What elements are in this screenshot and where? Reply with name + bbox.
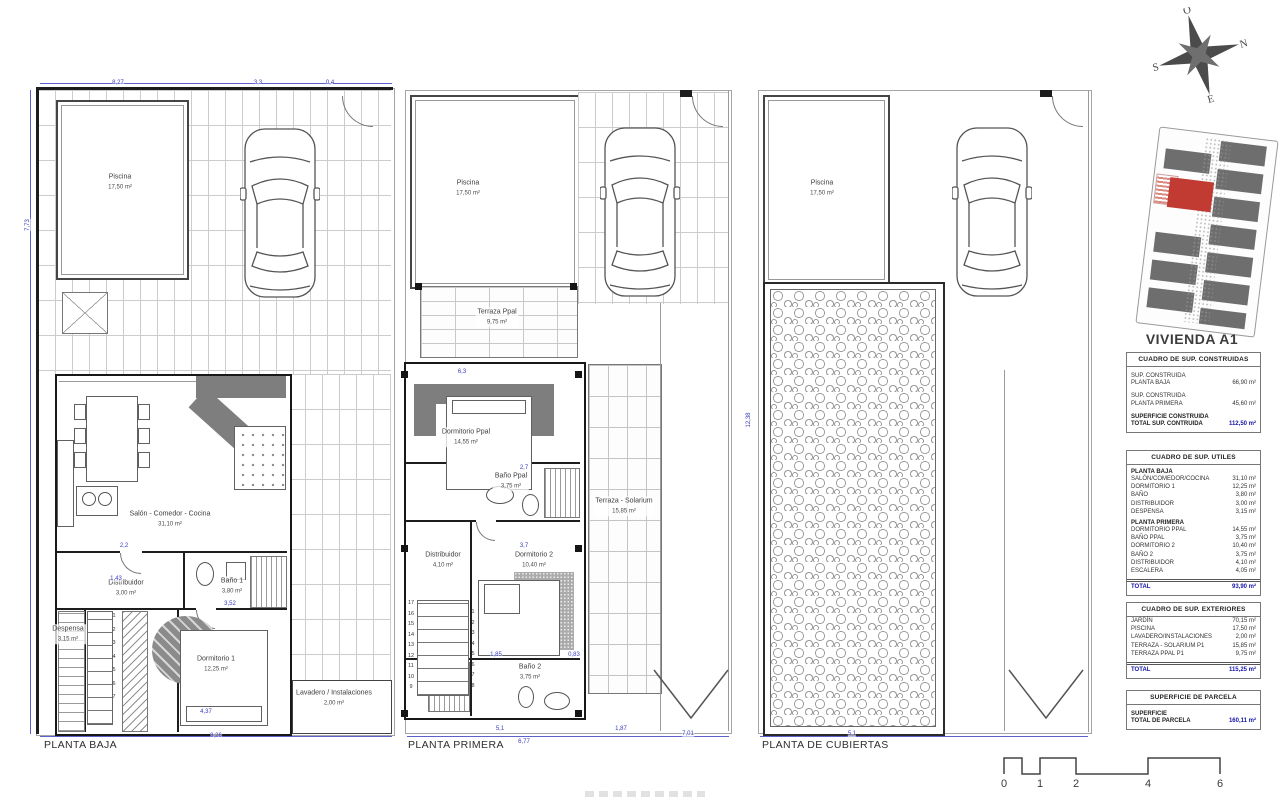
- sink: [544, 692, 570, 710]
- stair-number: 6: [112, 681, 115, 687]
- table-body: SUPERFICIETOTAL DE PARCELA160,11 m²: [1127, 710, 1260, 725]
- room-label: Piscina17,50 m²: [106, 172, 134, 192]
- stair-number: 2: [471, 620, 474, 626]
- span-decor: 17,50 m²: [810, 189, 834, 198]
- stair-number: 1: [471, 609, 474, 615]
- compass-south: S: [1151, 61, 1160, 74]
- chair: [74, 404, 86, 420]
- dim-line: [760, 736, 1088, 737]
- dimension-label: 3,3: [254, 80, 262, 86]
- table-row-label: DORMITORIO 1: [1131, 484, 1175, 491]
- pillar: [401, 545, 408, 552]
- table-row-label: SUPERFICIETOTAL DE PARCELA: [1131, 711, 1191, 725]
- table-row-label: BAÑO 2: [1131, 552, 1153, 559]
- div-decor: TOTAL DE PARCELA: [1131, 718, 1191, 725]
- dimension-label: 5,1: [848, 731, 856, 737]
- table-header: CUADRO DE SUP. UTILES: [1127, 451, 1260, 465]
- table-row: DESPENSA3,15 m²: [1127, 508, 1260, 516]
- headboard-wall: [414, 384, 436, 436]
- table-row-label: BAÑO PPAL: [1131, 535, 1165, 542]
- table-row: ESCALERA4,05 m²: [1127, 567, 1260, 575]
- table-row-value: 93,90 m²: [1229, 584, 1256, 591]
- span-decor: 3,75 m²: [495, 482, 527, 491]
- scale-number: 1: [1037, 778, 1043, 790]
- dim-line: [30, 90, 31, 734]
- table-row: SALÓN/COMEDOR/COCINA31,10 m²: [1127, 475, 1260, 483]
- table-row-label: DISTRIBUIDOR: [1131, 560, 1174, 567]
- table-row: DORMITORIO 112,25 m²: [1127, 483, 1260, 491]
- wall-segment: [36, 87, 393, 90]
- dimension-label: 1,43: [110, 576, 122, 582]
- wall-segment: [57, 608, 179, 610]
- drawing-canvas: PLANTA BAJA PLANTA PRIMERA PLANTA DE CUB…: [0, 0, 1280, 800]
- chair: [138, 452, 150, 468]
- div-decor: SUP. CONSTRUIDA: [1131, 393, 1186, 400]
- dimension-label: 0,83: [568, 652, 580, 658]
- span-decor: Distribuidor: [425, 551, 460, 558]
- span-decor: Dormitorio Ppal: [442, 428, 490, 435]
- span-decor: 15,85 m²: [595, 507, 652, 516]
- sofa: [234, 426, 286, 490]
- table-row-value: 15,85 m²: [1229, 643, 1256, 650]
- div-decor: ESCALERA: [1131, 568, 1163, 575]
- span-decor: Baño 2: [519, 663, 541, 670]
- table-parcela: SUPERFICIE DE PARCELA SUPERFICIETOTAL DE…: [1126, 690, 1261, 730]
- table-row: DISTRIBUIDOR3,00 m²: [1127, 500, 1260, 508]
- table-row: SUPERFICIE CONSTRUIDATOTAL SUP. CONTRUID…: [1127, 413, 1260, 428]
- pillar: [575, 545, 582, 552]
- dimension-label: 0,4: [326, 80, 334, 86]
- dimension-label: 2,7: [520, 465, 528, 471]
- table-row-value: 66,90 m²: [1229, 380, 1256, 387]
- table-row-label: DESPENSA: [1131, 509, 1164, 516]
- div-decor: TERRAZA PPAL P1: [1131, 651, 1184, 658]
- span-decor: Piscina: [457, 179, 480, 186]
- solarium-paving: [588, 364, 662, 694]
- dimension-label: 3,7: [520, 543, 528, 549]
- dimension-label: 3,52: [224, 601, 236, 607]
- room-label: Dormitorio Ppal14,55 m²: [440, 427, 492, 447]
- stair-number: 3: [112, 640, 115, 646]
- span-decor: 3,75 m²: [519, 673, 541, 682]
- div-decor: DORMITORIO 1: [1131, 484, 1175, 491]
- div-decor: DISTRIBUIDOR: [1131, 501, 1174, 508]
- table-row: SUP. CONSTRUIDAPLANTA BAJA66,90 m²: [1127, 372, 1260, 387]
- table-sup-construidas: CUADRO DE SUP. CONSTRUIDAS SUP. CONSTRUI…: [1126, 352, 1261, 433]
- table-row-label: DORMITORIO PPAL: [1131, 527, 1186, 534]
- dimension-label: 1,85: [490, 652, 502, 658]
- span-decor: 9,75 m²: [477, 318, 516, 327]
- span-decor: Despensa: [52, 625, 84, 632]
- stair-number: 12: [408, 653, 414, 659]
- table-sup-utiles: CUADRO DE SUP. UTILES PLANTA BAJASALÓN/C…: [1126, 450, 1261, 596]
- table-row-value: 45,60 m²: [1229, 401, 1256, 408]
- div-decor: TOTAL SUP. CONTRUIDA: [1131, 421, 1209, 428]
- chair: [74, 428, 86, 444]
- table-row: TOTAL93,90 m²: [1127, 579, 1260, 591]
- span-decor: Terraza - Solarium: [595, 497, 652, 504]
- truncated-caption: [585, 791, 705, 797]
- table-row: TERRAZA - SOLARIUM P115,85 m²: [1127, 642, 1260, 650]
- table-row-value: 3,80 m²: [1233, 492, 1256, 499]
- span-decor: 12,25 m²: [197, 665, 235, 674]
- div-decor: DISTRIBUIDOR: [1131, 560, 1174, 567]
- table-row-label: TERRAZA - SOLARIUM P1: [1131, 643, 1204, 650]
- table-row: JARDÍN70,15 m²: [1127, 617, 1260, 625]
- table-row-label: SALÓN/COMEDOR/COCINA: [1131, 476, 1209, 483]
- boundary-line: [1088, 90, 1089, 732]
- table-body: JARDÍN70,15 m²PISCINA17,50 m²LAVADERO/IN…: [1127, 617, 1260, 674]
- stair-number: 3: [471, 630, 474, 636]
- div-decor: SUPERFICIE: [1131, 711, 1191, 718]
- table-header: CUADRO DE SUP. CONSTRUIDAS: [1127, 353, 1260, 367]
- chair: [138, 404, 150, 420]
- table-row: SUP. CONSTRUIDAPLANTA PRIMERA45,60 m²: [1127, 392, 1260, 407]
- div-decor: SALÓN/COMEDOR/COCINA: [1131, 476, 1209, 483]
- stair-number: 15: [408, 621, 414, 627]
- stair-number: 11: [408, 663, 414, 669]
- compass-north: N: [1238, 37, 1249, 51]
- table-row-value: 115,25 m²: [1226, 667, 1256, 674]
- stair-number: 5: [112, 667, 115, 673]
- pool-2: [410, 95, 580, 289]
- span-decor: Lavadero / Instalaciones: [296, 689, 372, 696]
- div-decor: PISCINA: [1131, 626, 1155, 633]
- table-row-value: 14,55 m²: [1229, 527, 1256, 534]
- wall-segment: [36, 87, 39, 734]
- table-row-label: DORMITORIO 2: [1131, 543, 1175, 550]
- span-decor: 17,50 m²: [108, 183, 132, 192]
- div-decor: TOTAL: [1131, 667, 1150, 674]
- table-row-value: 160,11 m²: [1226, 718, 1256, 725]
- table-row-value: 17,50 m²: [1229, 626, 1256, 633]
- table-row-value: 4,05 m²: [1233, 568, 1256, 575]
- table-body: SUP. CONSTRUIDAPLANTA BAJA66,90 m²SUP. C…: [1127, 372, 1260, 428]
- wall-segment: [183, 553, 185, 608]
- stairs-1: [87, 611, 113, 725]
- plan-label-planta-cubiertas: PLANTA DE CUBIERTAS: [762, 739, 889, 751]
- div-decor: BAÑO 2: [1131, 552, 1153, 559]
- table-row: SUPERFICIETOTAL DE PARCELA160,11 m²: [1127, 710, 1260, 725]
- table-row: DORMITORIO 210,40 m²: [1127, 542, 1260, 550]
- div-decor: TOTAL: [1131, 584, 1150, 591]
- pillar: [401, 371, 408, 378]
- wall-segment: [177, 608, 287, 610]
- use-decor: [240, 129, 320, 297]
- room-label: Terraza - Solarium15,85 m²: [593, 496, 654, 516]
- pillar: [401, 710, 408, 717]
- dining-table: [86, 396, 138, 482]
- table-row: BAÑO 23,75 m²: [1127, 551, 1260, 559]
- table-row-value: 9,75 m²: [1233, 651, 1256, 658]
- sheet-title: VIVIENDA A1: [1122, 331, 1262, 347]
- span-decor: 3,00 m²: [108, 589, 143, 598]
- table-header: SUPERFICIE DE PARCELA: [1127, 691, 1260, 705]
- table-row-label: BAÑO: [1131, 492, 1148, 499]
- driveway-ramp-arrow: [1006, 662, 1086, 724]
- span-decor: Terraza Ppal: [477, 308, 516, 315]
- table-row: LAVADERO/INSTALACIONES2,00 m²: [1127, 633, 1260, 641]
- stair-number: 4: [471, 641, 474, 647]
- table-row: BAÑO3,80 m²: [1127, 491, 1260, 499]
- table-header: CUADRO DE SUP. EXTERIORES: [1127, 603, 1260, 617]
- path-decor: [1004, 758, 1220, 774]
- table-section-title: PLANTA PRIMERA: [1127, 516, 1260, 526]
- dimension-label: 7,01: [682, 731, 694, 737]
- table-row: TOTAL115,25 m²: [1127, 662, 1260, 674]
- dimension-label: 6,77: [518, 739, 530, 745]
- stair-number: 9: [409, 684, 412, 690]
- scale-number: 0: [1001, 778, 1007, 790]
- room-label: Lavadero / Instalaciones2,00 m²: [294, 688, 374, 708]
- terrace-paving-1: [288, 374, 391, 732]
- stair-number: 7: [112, 694, 115, 700]
- headboard-wall: [532, 384, 554, 436]
- table-sup-exteriores: CUADRO DE SUP. EXTERIORES JARDÍN70,15 m²…: [1126, 602, 1261, 679]
- polyline-decor: [1009, 670, 1083, 718]
- room-label: Salón - Comedor - Cocina31,10 m²: [128, 509, 213, 529]
- site-location-map: [1135, 126, 1278, 337]
- span-decor: 14,55 m²: [442, 438, 490, 447]
- wall-segment: [57, 551, 287, 553]
- span-decor: Piscina: [109, 173, 132, 180]
- dimension-label: 4,37: [200, 709, 212, 715]
- span-decor: Baño 1: [221, 577, 243, 584]
- table-row-value: 12,25 m²: [1229, 484, 1256, 491]
- chair: [138, 428, 150, 444]
- span-decor: 10,40 m²: [515, 561, 553, 570]
- bed-pillow: [186, 706, 262, 722]
- room-label: Dormitorio 112,25 m²: [195, 654, 237, 674]
- table-row: PISCINA17,50 m²: [1127, 625, 1260, 633]
- room-label: Baño Ppal3,75 m²: [493, 471, 529, 491]
- table-row: TERRAZA PPAL P19,75 m²: [1127, 650, 1260, 658]
- stair-number: 10: [408, 674, 414, 680]
- dimension-label: 2,2: [120, 543, 128, 549]
- toilet: [522, 494, 539, 516]
- room-label: Piscina17,50 m²: [454, 178, 482, 198]
- dimension-label: 1,87: [615, 726, 627, 732]
- use-decor: [952, 128, 1032, 296]
- table-row-value: 31,10 m²: [1229, 476, 1256, 483]
- toilet: [518, 686, 534, 708]
- pillar: [570, 283, 577, 290]
- table-row-label: ESCALERA: [1131, 568, 1163, 575]
- compass-west: O: [1182, 4, 1193, 18]
- div-decor: PLANTA BAJA: [1131, 380, 1186, 387]
- table-row-label: SUPERFICIE CONSTRUIDATOTAL SUP. CONTRUID…: [1131, 414, 1209, 428]
- table-row-value: 3,00 m²: [1233, 501, 1256, 508]
- span-decor: 3,80 m²: [221, 587, 243, 596]
- plan-label-planta-baja: PLANTA BAJA: [44, 739, 117, 751]
- scale-number: 6: [1217, 778, 1223, 790]
- stair-number: 16: [408, 611, 414, 617]
- stair-number: 4: [112, 654, 115, 660]
- dimension-label: 12,38: [746, 412, 752, 427]
- span-decor: 2,00 m²: [296, 699, 372, 708]
- table-body: PLANTA BAJASALÓN/COMEDOR/COCINA31,10 m²D…: [1127, 465, 1260, 591]
- pillar: [575, 371, 582, 378]
- span-decor: 17,50 m²: [456, 189, 480, 198]
- div-decor: BAÑO: [1131, 492, 1148, 499]
- table-row: DORMITORIO PPAL14,55 m²: [1127, 526, 1260, 534]
- dimension-label: 7,73: [25, 219, 31, 231]
- stairs-2: [417, 600, 469, 696]
- roof-gravel: [770, 289, 936, 727]
- table-row-value: 3,75 m²: [1233, 552, 1256, 559]
- div-decor: JARDÍN: [1131, 618, 1153, 625]
- table-row-label: JARDÍN: [1131, 618, 1153, 625]
- car-top-view: [240, 126, 320, 300]
- div-decor: SUP. CONSTRUIDA: [1131, 373, 1186, 380]
- table-row-value: 112,50 m²: [1226, 421, 1256, 428]
- stair-number: 2: [112, 627, 115, 633]
- pillar: [575, 710, 582, 717]
- highlighted-unit-a1: [1167, 177, 1214, 212]
- scale-number: 4: [1145, 778, 1151, 790]
- driveway-ramp-arrow: [652, 662, 730, 724]
- chair: [74, 452, 86, 468]
- span-decor: 3,15 m²: [52, 635, 84, 644]
- span-decor: Dormitorio 2: [515, 551, 553, 558]
- table-row-label: TOTAL: [1131, 667, 1150, 674]
- span-decor: Salón - Comedor - Cocina: [130, 510, 211, 517]
- div-decor: PLANTA PRIMERA: [1131, 401, 1186, 408]
- div-decor: DORMITORIO PPAL: [1131, 527, 1186, 534]
- stair-number: 5: [471, 651, 474, 657]
- stair-number: 7: [471, 672, 474, 678]
- table-row-value: 10,40 m²: [1229, 543, 1256, 550]
- boundary-line: [1004, 370, 1005, 731]
- stair-number: 14: [408, 632, 414, 638]
- room-label: Despensa3,15 m²: [50, 624, 86, 644]
- table-row: DISTRIBUIDOR4,10 m²: [1127, 559, 1260, 567]
- room-label: Baño 13,80 m²: [219, 576, 245, 596]
- table-row-label: SUP. CONSTRUIDAPLANTA BAJA: [1131, 373, 1186, 387]
- use-decor: [600, 128, 680, 296]
- shower-1: [250, 556, 287, 608]
- table-row-label: SUP. CONSTRUIDAPLANTA PRIMERA: [1131, 393, 1186, 407]
- room-label: Piscina17,50 m²: [808, 178, 836, 198]
- wardrobe: [122, 611, 148, 732]
- table-row-label: LAVADERO/INSTALACIONES: [1131, 634, 1212, 641]
- toilet: [196, 562, 214, 586]
- stair-number: 17: [408, 600, 414, 606]
- span-decor: Dormitorio 1: [197, 655, 235, 662]
- scale-bar: [998, 748, 1242, 778]
- gate-post: [680, 90, 692, 97]
- table-row-label: TOTAL: [1131, 584, 1150, 591]
- table-row-value: 3,75 m²: [1233, 535, 1256, 542]
- room-label: Distribuidor4,10 m²: [423, 550, 462, 570]
- kitchen-counter: [57, 440, 74, 527]
- table-row-value: 3,15 m²: [1233, 509, 1256, 516]
- table-section-title: PLANTA BAJA: [1127, 465, 1260, 475]
- bed-pillow: [484, 584, 520, 614]
- span-decor: Baño Ppal: [495, 472, 527, 479]
- table-row-value: 70,15 m²: [1229, 618, 1256, 625]
- table-row-label: DISTRIBUIDOR: [1131, 501, 1174, 508]
- stair-number: 8: [471, 683, 474, 689]
- plan-label-planta-primera: PLANTA PRIMERA: [408, 739, 504, 751]
- div-decor: SUPERFICIE CONSTRUIDA: [1131, 414, 1209, 421]
- div-decor: LAVADERO/INSTALACIONES: [1131, 634, 1212, 641]
- bed-pillow: [452, 400, 526, 414]
- dimension-label: 6,3: [458, 369, 466, 375]
- boundary-line: [728, 90, 729, 731]
- table-row-label: TERRAZA PPAL P1: [1131, 651, 1184, 658]
- room-label: Dormitorio 210,40 m²: [513, 550, 555, 570]
- stair-number: 6: [471, 662, 474, 668]
- dimension-label: 5,1: [496, 726, 504, 732]
- car-top-view: [952, 125, 1032, 299]
- table-row-label: PISCINA: [1131, 626, 1155, 633]
- room-label: Terraza Ppal9,75 m²: [475, 307, 518, 327]
- stair-number: 13: [408, 642, 414, 648]
- div-decor: BAÑO PPAL: [1131, 535, 1165, 542]
- hob-burner: [82, 492, 96, 506]
- shower-ppal: [544, 468, 580, 518]
- pillar: [415, 283, 422, 290]
- dimension-label: 8,27: [112, 80, 124, 86]
- gate-post: [1040, 90, 1052, 97]
- dim-line: [407, 736, 729, 737]
- room-label: Baño 23,75 m²: [517, 662, 543, 682]
- div-decor: TERRAZA - SOLARIUM P1: [1131, 643, 1204, 650]
- polyline-decor: [654, 670, 728, 718]
- skylight-square: [62, 292, 108, 334]
- div-decor: DORMITORIO 2: [1131, 543, 1175, 550]
- table-row: BAÑO PPAL3,75 m²: [1127, 534, 1260, 542]
- scale-number: 2: [1073, 778, 1079, 790]
- dim-line: [40, 83, 392, 84]
- compass-rose-icon: O N E S: [1139, 0, 1259, 115]
- car-top-view: [600, 125, 680, 299]
- div-decor: DESPENSA: [1131, 509, 1164, 516]
- table-row-value: 2,00 m²: [1233, 634, 1256, 641]
- dimension-label: 8,26: [210, 733, 222, 739]
- span-decor: 31,10 m²: [130, 520, 211, 529]
- hob-burner: [98, 492, 112, 506]
- compass-east: E: [1206, 93, 1216, 106]
- span-decor: Piscina: [811, 179, 834, 186]
- table-row-value: 4,10 m²: [1233, 560, 1256, 567]
- stair-number: 1: [112, 613, 115, 619]
- polygon-decor: [1167, 23, 1231, 87]
- span-decor: 4,10 m²: [425, 561, 460, 570]
